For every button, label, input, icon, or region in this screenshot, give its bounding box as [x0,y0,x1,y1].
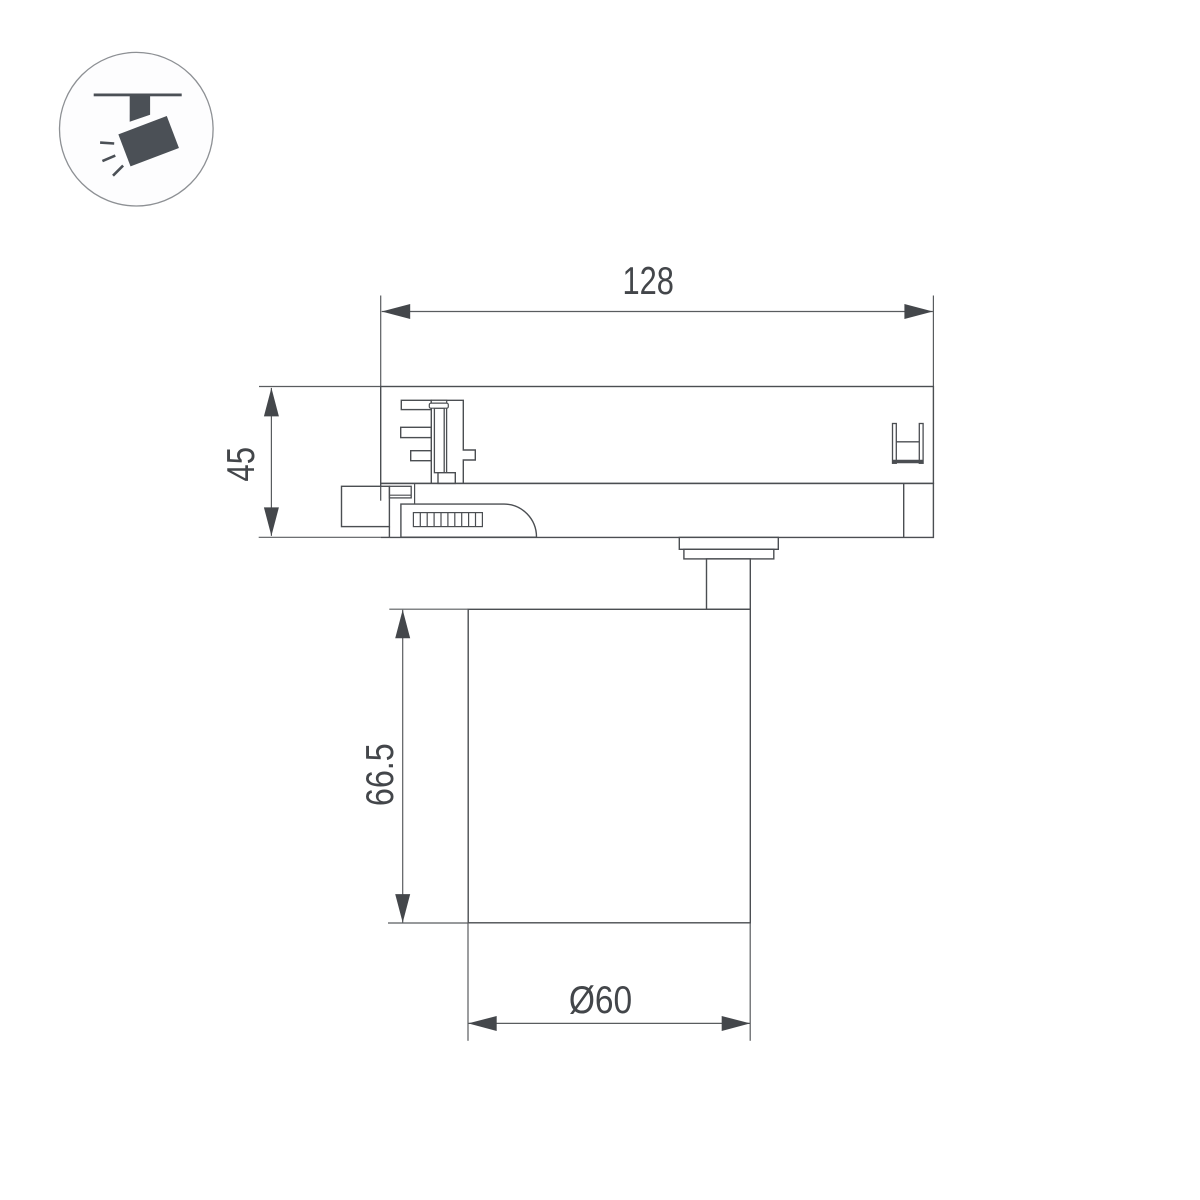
svg-text:128: 128 [623,260,674,303]
svg-text:Ø60: Ø60 [569,978,632,1022]
svg-text:45: 45 [220,447,263,482]
svg-text:66.5: 66.5 [358,743,401,806]
